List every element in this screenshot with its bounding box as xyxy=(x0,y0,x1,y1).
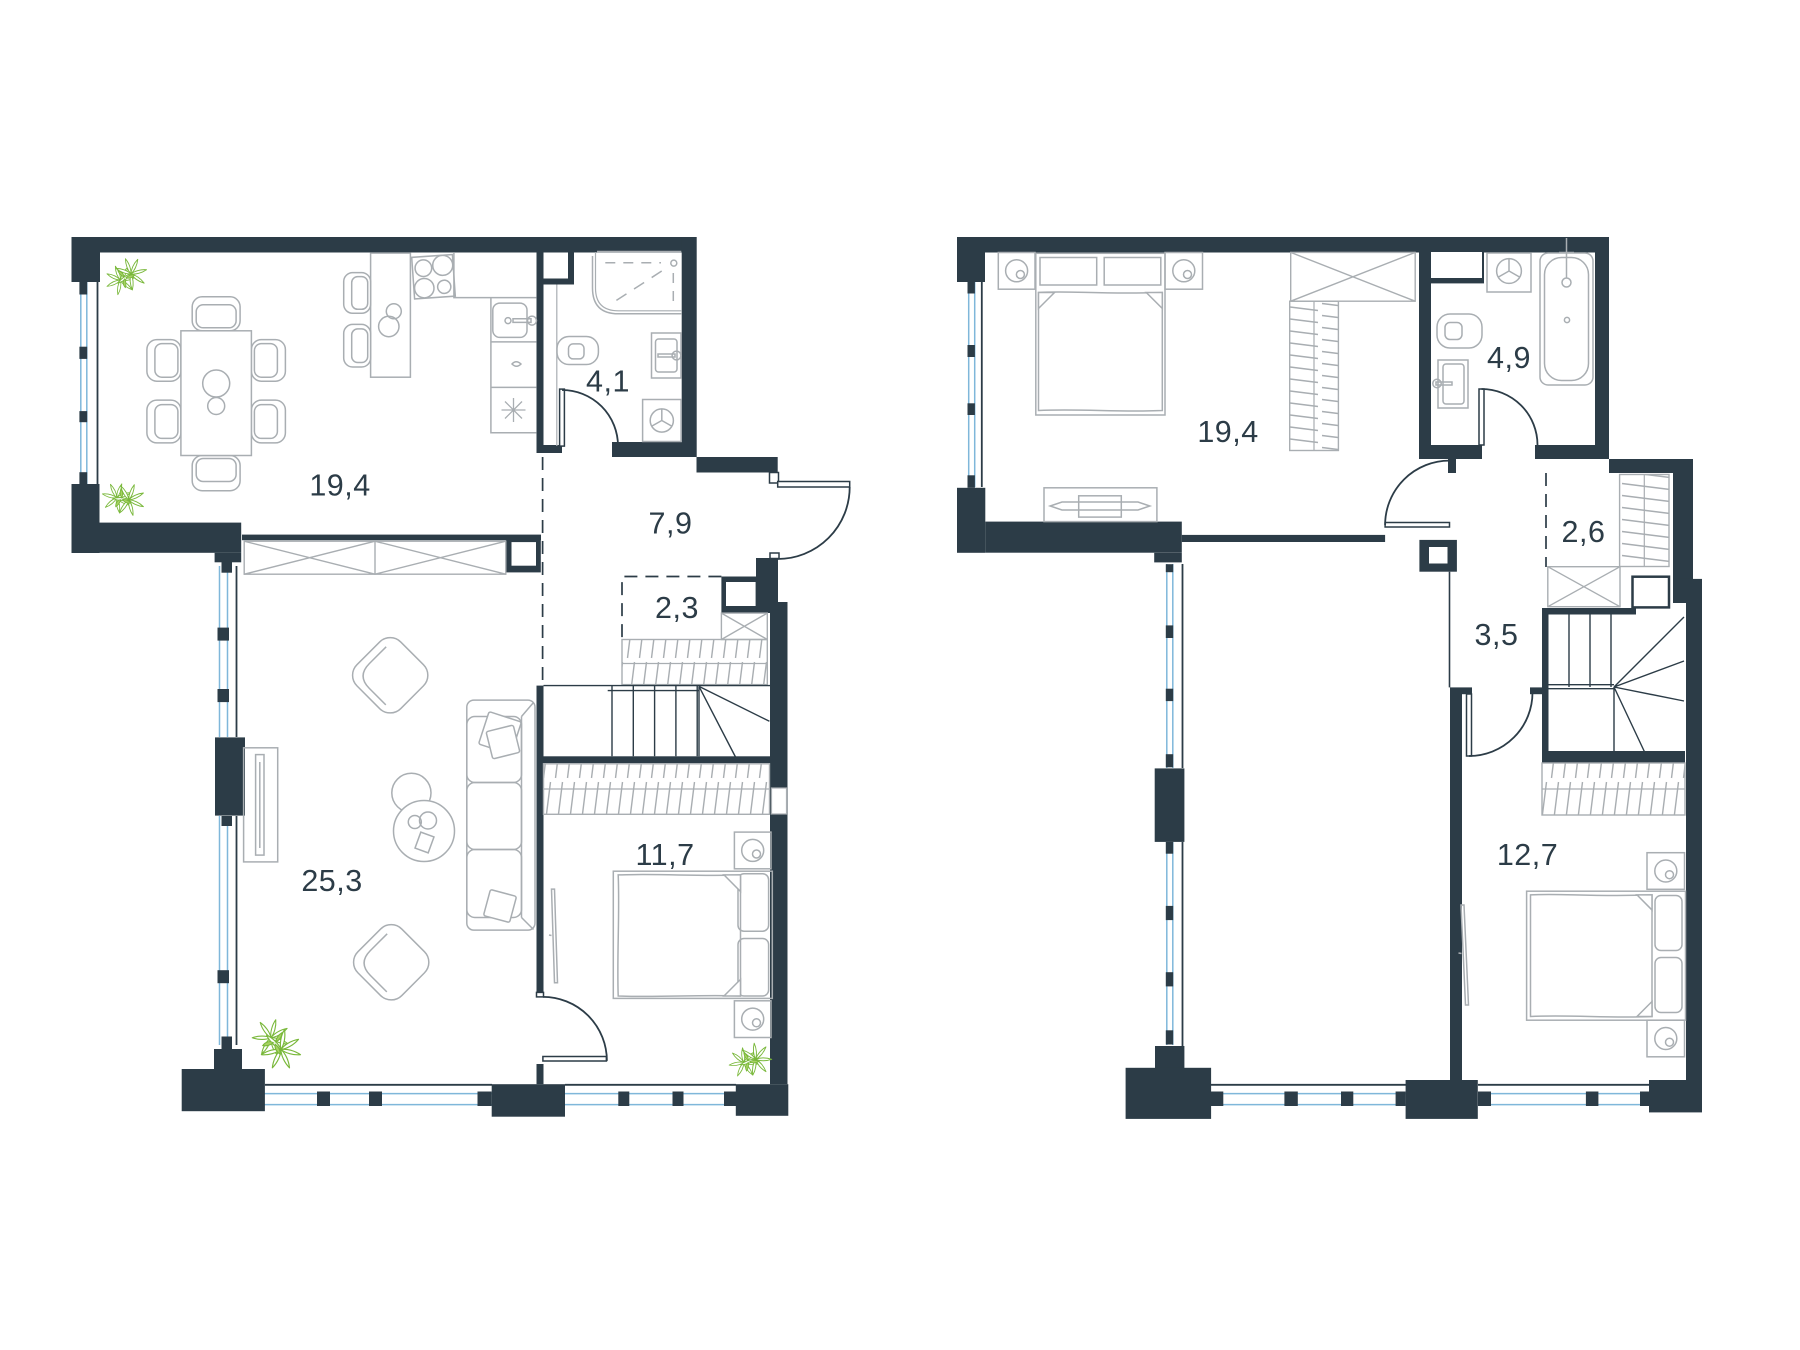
svg-text:11,7: 11,7 xyxy=(635,838,694,872)
svg-text:4,1: 4,1 xyxy=(586,365,630,399)
svg-text:19,4: 19,4 xyxy=(1197,415,1258,449)
svg-text:2,6: 2,6 xyxy=(1562,515,1606,549)
svg-text:12,7: 12,7 xyxy=(1497,838,1558,872)
svg-text:7,9: 7,9 xyxy=(649,507,693,541)
svg-text:3,5: 3,5 xyxy=(1475,618,1519,652)
svg-text:2,3: 2,3 xyxy=(655,591,699,625)
svg-text:19,4: 19,4 xyxy=(309,469,370,503)
svg-text:4,9: 4,9 xyxy=(1487,341,1531,375)
svg-text:25,3: 25,3 xyxy=(301,864,362,898)
